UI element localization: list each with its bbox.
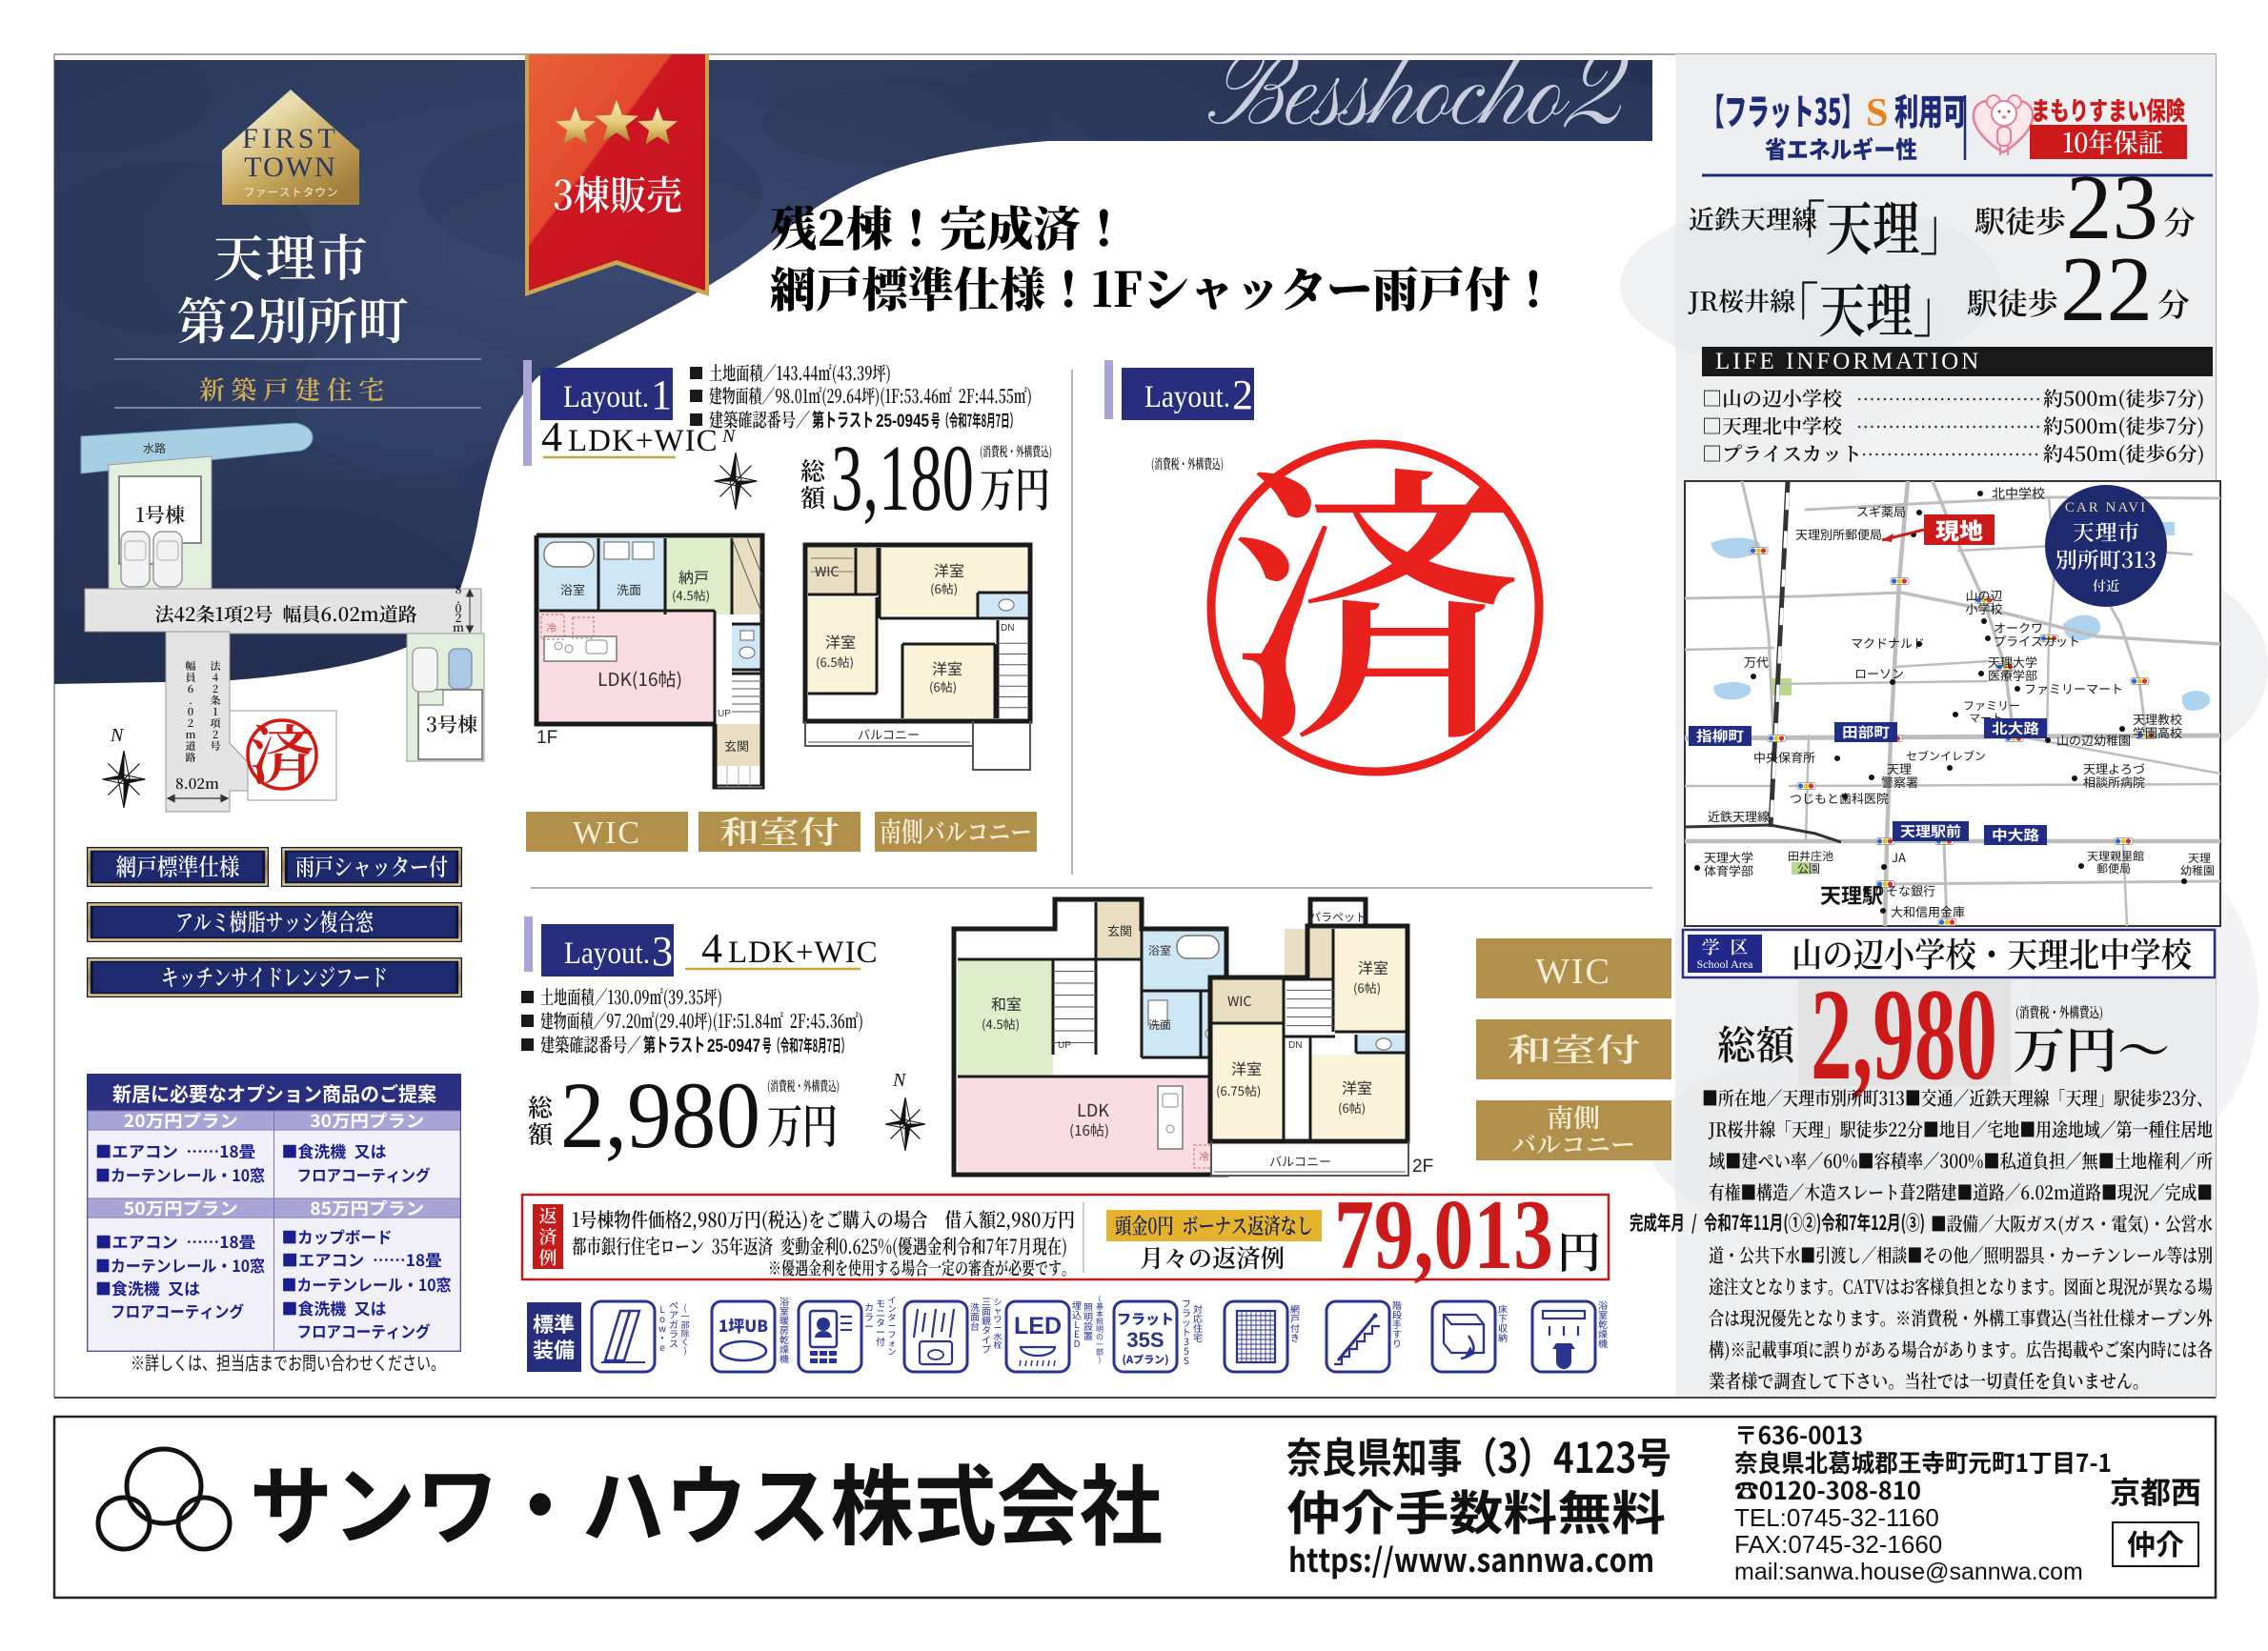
svg-text:3: 3 (652, 928, 673, 975)
svg-text:Layout.: Layout. (563, 380, 649, 414)
svg-text:2,980: 2,980 (560, 1062, 760, 1168)
svg-text:22: 22 (2060, 238, 2153, 340)
svg-text:S: S (1866, 91, 1888, 135)
svg-text:TOWN: TOWN (244, 151, 336, 183)
svg-text:Layout.: Layout. (564, 936, 650, 971)
svg-text:4: 4 (541, 413, 562, 460)
svg-text:N: N (721, 426, 737, 447)
svg-text:N: N (892, 1070, 907, 1091)
svg-text:Layout.: Layout. (1144, 380, 1230, 414)
svg-text:TEL:0745-32-1160: TEL:0745-32-1160 (1734, 1503, 1939, 1532)
svg-text:CAR NAVI: CAR NAVI (2065, 500, 2147, 515)
svg-text:LDK+WIC: LDK+WIC (728, 936, 879, 970)
svg-text:2,980: 2,980 (1811, 961, 1997, 1107)
svg-text:3,180: 3,180 (831, 425, 974, 531)
svg-text:mail:sanwa.house@sannwa.com: mail:sanwa.house@sannwa.com (1734, 1559, 2083, 1585)
svg-text:UP: UP (1058, 1040, 1071, 1051)
svg-text:School Area: School Area (1697, 957, 1754, 971)
svg-text:2F: 2F (1412, 1157, 1433, 1177)
svg-text:LDK+WIC: LDK+WIC (568, 424, 719, 458)
svg-text:N: N (110, 725, 125, 746)
svg-text:79,013: 79,013 (1334, 1178, 1553, 1290)
svg-text:DN: DN (1288, 1040, 1302, 1051)
svg-text:1: 1 (651, 372, 672, 418)
svg-text:2: 2 (1232, 372, 1253, 418)
svg-text:LIFE INFORMATION: LIFE INFORMATION (1715, 349, 1981, 374)
svg-text:WIC: WIC (1535, 952, 1611, 992)
svg-text:FAX:0745-32-1660: FAX:0745-32-1660 (1734, 1530, 1942, 1559)
svg-text:35S: 35S (1126, 1328, 1164, 1352)
svg-text:4: 4 (701, 925, 722, 972)
svg-text:DN: DN (1001, 623, 1014, 634)
svg-text:WIC: WIC (573, 815, 641, 851)
svg-text:UP: UP (718, 709, 731, 719)
svg-text:LED: LED (1014, 1313, 1062, 1339)
svg-text:FIRST: FIRST (242, 123, 339, 154)
svg-text:25-0947: 25-0947 (707, 1037, 760, 1057)
svg-text:1F: 1F (537, 728, 557, 748)
